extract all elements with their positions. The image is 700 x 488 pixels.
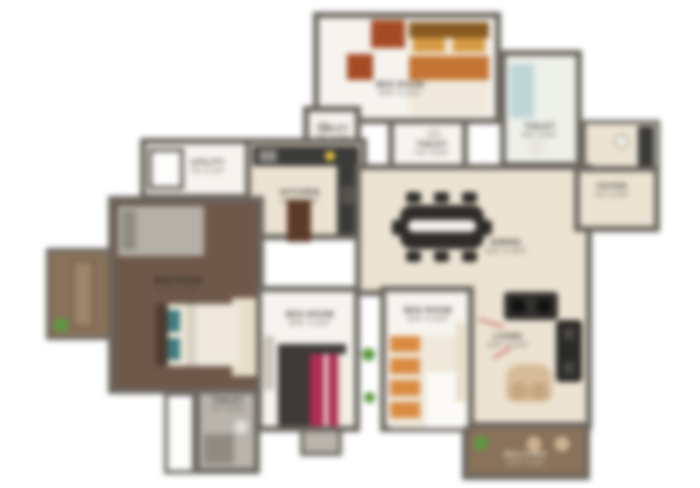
bed-pillow <box>390 358 420 374</box>
room-name: TOILET <box>317 124 348 133</box>
room-name: BED ROOM <box>404 306 452 315</box>
table-runner <box>408 220 476 232</box>
washing-machine <box>148 148 184 190</box>
room-label-dining: DINING 12'6" X 10'0" <box>485 238 528 256</box>
room-dims: 10'0" X 11'6" <box>404 316 452 324</box>
sofa <box>506 364 552 402</box>
room-dims: 10'6" X 12'0" <box>376 90 424 98</box>
room-name: FOYER <box>597 182 627 191</box>
room-label-bedroom-right: BED ROOM 10'0" X 11'6" <box>404 306 452 324</box>
room-name: BED ROOM <box>376 80 424 89</box>
room-dims: 10'0" X 11'6" <box>286 320 334 328</box>
bed-headboard <box>278 344 346 354</box>
bed-headboard <box>156 304 168 366</box>
wc-icon <box>234 420 248 434</box>
room-bedroom-master <box>108 196 264 394</box>
plant-icon <box>474 436 488 450</box>
room-name: TOILET <box>416 140 447 149</box>
wardrobe <box>371 20 405 48</box>
bed-pillow <box>168 310 180 332</box>
room-label-toilet-top-right: TOILET 8'0" X 5'0" <box>523 122 558 140</box>
plant-icon <box>364 392 375 403</box>
speaker-icon <box>511 299 525 313</box>
bed <box>390 336 464 428</box>
plant-icon <box>54 318 68 332</box>
room-name: BALCONY <box>504 450 547 459</box>
dining-chair <box>434 192 449 203</box>
stove-icon <box>341 186 355 204</box>
room-name: BED ROOM <box>154 276 202 285</box>
bed-stripe <box>328 354 338 426</box>
sofa-cushion <box>510 382 528 400</box>
wc-icon <box>426 128 442 140</box>
pouf-seat <box>552 434 572 454</box>
dresser-stool <box>122 210 136 250</box>
side-cabinet <box>556 320 582 382</box>
room-dims: 7'0" X 5'0" <box>211 406 246 414</box>
room-wash <box>582 120 660 172</box>
room-label-foyer: FOYER 7'0" X 4'6" <box>595 182 630 200</box>
dining-chair <box>406 192 421 203</box>
room-dims: 7'6" X 4'0" <box>191 168 226 176</box>
rug <box>347 54 373 80</box>
duct-box <box>300 428 342 456</box>
wc-icon <box>528 138 546 156</box>
room-label-toilet-bottom: TOILET 7'0" X 5'0" <box>211 396 246 414</box>
bed-stripe <box>310 354 324 426</box>
room-dims: 8'0" X 5'0" <box>523 132 558 140</box>
room-dims: 11'0" X 12'0" <box>154 286 202 294</box>
room-name: TOILET <box>524 122 555 131</box>
bed <box>278 344 346 426</box>
deck-door <box>72 260 94 328</box>
bed-pillow <box>390 336 420 352</box>
bed-throw <box>186 304 196 366</box>
dining-chair <box>434 251 449 262</box>
cabinet-handle <box>564 328 574 340</box>
room-label-bedroom-top: BED ROOM 10'6" X 12'0" <box>376 80 424 98</box>
bed-pillow <box>413 38 445 52</box>
room-name: LIVING <box>493 332 523 341</box>
dining-chair <box>462 192 477 203</box>
bed-pillow <box>390 402 420 418</box>
room-name: DINING <box>490 238 521 247</box>
dining-table <box>400 205 484 249</box>
bed-pillow <box>453 38 485 52</box>
room-dims: 12'6" X 10'0" <box>485 248 528 256</box>
room-dims: 13'0" X 11'0" <box>487 342 529 350</box>
bed-pillow <box>390 380 420 396</box>
duct-shaft <box>164 392 196 474</box>
room-dims: 12'0" X 5'0" <box>504 460 547 468</box>
bed <box>409 22 489 114</box>
cabinet <box>638 126 654 166</box>
room-name: KITCHEN <box>280 188 319 197</box>
sink-icon <box>325 151 335 161</box>
cabinet-handle <box>564 362 574 374</box>
room-dims: 7'6" X 5'0" <box>415 150 450 158</box>
bed-blanket <box>409 56 489 80</box>
wardrobe <box>264 336 274 390</box>
room-label-bedroom-left: BED ROOM 10'0" X 11'6" <box>286 310 334 328</box>
floor-plan-canvas: BED ROOM 10'6" X 12'0" TOILET 7'0" X 5'0… <box>0 0 700 488</box>
room-label-toilet-mid: TOILET 7'6" X 5'0" <box>415 140 450 158</box>
bed <box>156 304 240 366</box>
door-panel <box>287 200 311 242</box>
dresser <box>118 206 204 256</box>
room-deck <box>46 248 112 340</box>
room-toilet-top-right <box>500 50 582 168</box>
dining-set <box>392 192 492 262</box>
dining-chair <box>406 251 421 262</box>
room-label-bedroom-master: BED ROOM 11'0" X 12'0" <box>154 276 202 294</box>
wardrobe <box>456 322 466 402</box>
room-name: BED ROOM <box>286 310 334 319</box>
floor-plan: BED ROOM 10'6" X 12'0" TOILET 7'0" X 5'0… <box>0 0 700 488</box>
fridge <box>259 150 277 162</box>
room-label-living: LIVING 13'0" X 11'0" <box>487 332 529 350</box>
shower <box>204 434 234 464</box>
room-name: UTILITY <box>191 158 225 167</box>
room-label-balcony: BALCONY 12'0" X 5'0" <box>504 450 547 468</box>
bed-pillow <box>168 338 180 360</box>
sofa-cushion <box>530 382 548 400</box>
room-name: TOILET <box>212 396 243 405</box>
speaker-icon <box>537 299 551 313</box>
shower <box>510 64 534 118</box>
tv-unit <box>504 292 558 320</box>
wash-basin-icon <box>614 134 629 149</box>
plant-icon <box>362 348 375 361</box>
room-label-utility: UTILITY 7'6" X 4'0" <box>191 158 226 176</box>
bed-headboard <box>409 22 489 38</box>
room-bedroom-left <box>256 286 360 432</box>
room-dims: 7'0" X 4'6" <box>595 192 630 200</box>
bed-blanket <box>278 354 310 426</box>
dining-chair <box>462 251 477 262</box>
